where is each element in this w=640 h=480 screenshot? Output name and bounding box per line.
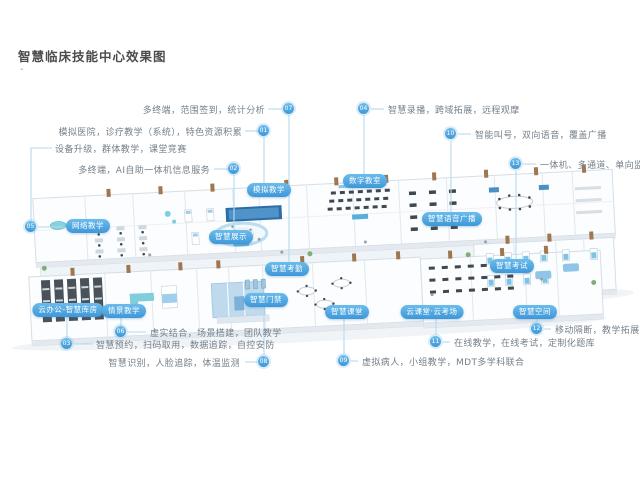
callout-text-02: 多终端，AI自助一体机信息服务	[78, 163, 210, 176]
area-label-smart-access-control: 智慧门禁	[244, 293, 288, 307]
area-label-digital-classroom: 数字教室	[343, 174, 387, 188]
area-label-smart-attendance: 智慧考勤	[265, 262, 309, 276]
callout-text-10: 智能叫号，双向语音，覆盖广播	[475, 128, 607, 141]
callout-badge-12: 12	[531, 323, 542, 334]
callout-badge-04: 04	[358, 103, 369, 114]
callout-badge-02: 02	[228, 163, 239, 174]
smart-clinical-skills-center-diagram: 智慧临床技能中心效果图 -	[0, 0, 640, 480]
callout-badge-07: 07	[283, 103, 294, 114]
callout-badge-10: 10	[445, 128, 456, 139]
callout-badge-03: 03	[61, 338, 72, 349]
callout-badge-13: 13	[510, 158, 521, 169]
floor-plan-illustration	[0, 0, 640, 480]
callout-text-07: 多终端，范围签到，统计分析	[143, 103, 265, 116]
area-label-smart-space: 智慧空间	[513, 305, 557, 319]
callout-text-06: 虚实结合，场景搭建，团队教学	[150, 326, 282, 339]
callout-text-01: 模拟医院，诊疗教学（系统），特色资源积累	[58, 125, 242, 138]
area-label-smart-classroom: 智慧课堂	[325, 305, 369, 319]
area-label-smart-exhibition: 智慧展示	[209, 230, 253, 244]
callout-text-11: 在线教学，在线考试，定制化题库	[454, 336, 595, 349]
area-label-network-teaching: 网络教学	[66, 219, 110, 233]
callout-badge-06: 06	[115, 326, 126, 337]
callout-text-08: 智慧识别，人脸追踪，体温监测	[108, 356, 240, 369]
callout-text-04: 智慧录播，跨域拓展，远程观摩	[388, 103, 520, 116]
callout-text-13: 一体机、多通道、单向监考	[540, 158, 640, 171]
area-label-smart-voice-broadcast: 智慧语音广播	[422, 212, 482, 226]
callout-badge-05: 05	[25, 221, 36, 232]
callout-badge-08: 08	[258, 356, 269, 367]
area-label-cloud-office-storeroom: 云办公-智慧库房	[32, 303, 103, 317]
callout-badge-01: 01	[258, 125, 269, 136]
callout-badge-11: 11	[430, 336, 441, 347]
area-label-cloud-classroom-exam-hall: 云课堂·云考场	[401, 305, 464, 319]
callout-text-05: 设备升级，群体教学，课堂竞赛	[55, 142, 187, 155]
area-label-simulation-teaching: 模拟教学	[247, 183, 291, 197]
area-label-scenario-teaching: 情景教学	[102, 304, 146, 318]
callout-badge-09: 09	[338, 355, 349, 366]
callout-text-09: 虚拟病人，小组教学，MDT多学科联合	[362, 355, 524, 368]
callout-text-03: 智慧预约，扫码取用，数据追踪，自控安防	[96, 338, 275, 351]
callout-text-12: 移动隔断，教学拓展	[555, 323, 640, 336]
area-label-smart-exam: 智慧考试	[490, 259, 534, 273]
